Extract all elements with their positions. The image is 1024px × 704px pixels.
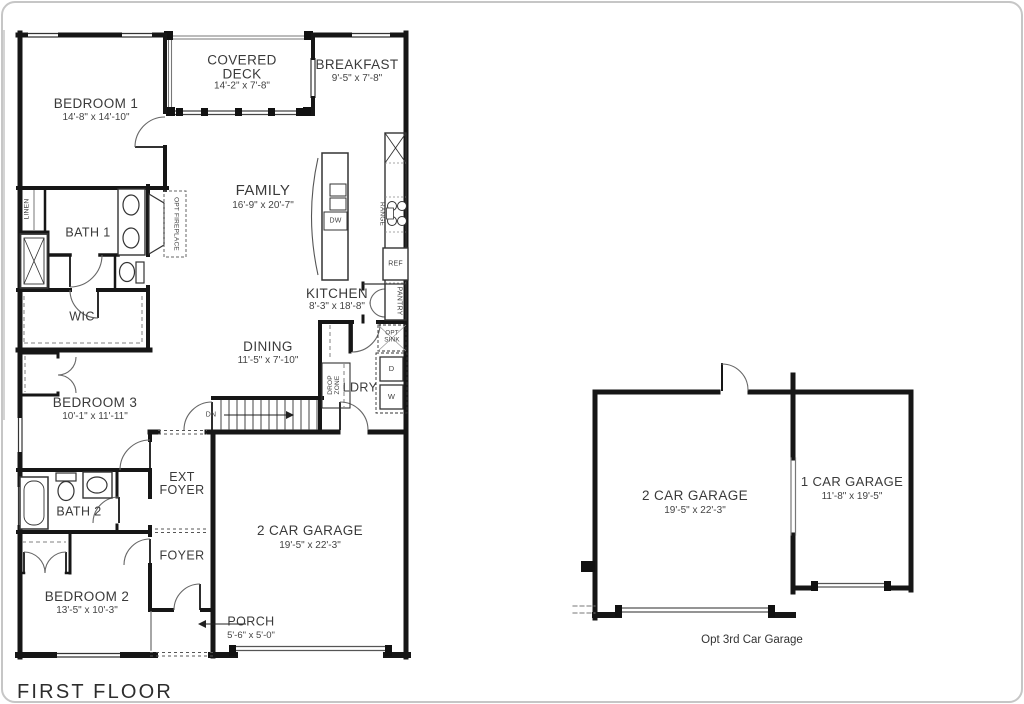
garage-door-main — [229, 645, 392, 656]
washer-label: W — [388, 393, 395, 401]
windows — [16, 31, 391, 660]
room-label-dining: DINING — [243, 340, 293, 354]
room-label-bedroom2: BEDROOM 2 — [45, 590, 130, 604]
room-dims-garage-main: 19'-5" x 22'-3" — [279, 541, 341, 552]
floor-plan-page: BEDROOM 1 14'-8" x 14'-10" COVERED DECK … — [0, 0, 1024, 704]
room-dims-porch: 5'-6" x 5'-0" — [227, 631, 275, 641]
room-label-bedroom1: BEDROOM 1 — [54, 97, 139, 111]
fireplace — [149, 191, 186, 257]
room-dims-breakfast: 9'-5" x 7'-8" — [332, 74, 382, 85]
drop-zone-label: DROP ZONE — [328, 375, 342, 395]
room-dims-dining: 11'-5" x 7'-10" — [238, 356, 299, 367]
room-label-garage-main: 2 CAR GARAGE — [257, 524, 363, 538]
room-label-opt-1car-garage: 1 CAR GARAGE — [801, 475, 903, 489]
room-dims-bedroom1: 14'-8" x 14'-10" — [62, 113, 129, 124]
room-label-covered-deck: COVERED DECK 14'-2" x 7'-8" — [207, 54, 277, 93]
room-label-bath1: BATH 1 — [65, 226, 110, 239]
dishwasher-label: DW — [329, 217, 341, 224]
room-label-ldry: LDRY — [343, 381, 378, 394]
room-label-bedroom3: BEDROOM 3 — [53, 396, 138, 410]
opt-sink-label: OPT SINK — [384, 330, 400, 343]
room-dims-opt-2car-garage: 19'-5" x 22'-3" — [664, 506, 726, 517]
stairs-down-label: DN — [206, 411, 217, 418]
plan-title: FIRST FLOOR — [17, 682, 173, 703]
room-dims-family: 16'-9" x 20'-7" — [232, 201, 294, 212]
range-label: RANGE — [378, 202, 385, 226]
ext-foyer-line2: FOYER — [159, 484, 204, 497]
covered-deck-line1: COVERED — [207, 54, 277, 68]
stairs — [221, 400, 317, 430]
refrigerator-label: REF — [388, 260, 403, 267]
drop-zone-line2: ZONE — [335, 376, 342, 395]
room-label-wic: WIC — [69, 310, 95, 323]
room-label-family: FAMILY — [236, 183, 291, 199]
dryer-label: D — [389, 365, 395, 373]
bath2-fixtures — [20, 472, 112, 529]
room-dims-opt-1car-garage: 11'-8" x 19'-5" — [822, 492, 883, 503]
room-label-foyer: FOYER — [159, 549, 204, 562]
opt-fireplace-label: OPT FIREPLACE — [172, 197, 179, 251]
opt-sink-line2: SINK — [384, 337, 400, 344]
opt-garage-caption: Opt 3rd Car Garage — [701, 634, 803, 646]
room-dims-bedroom3: 10'-1" x 11'-11" — [62, 412, 128, 423]
covered-deck-line2: DECK — [222, 68, 261, 82]
room-label-breakfast: BREAKFAST — [315, 58, 398, 72]
room-label-opt-2car-garage: 2 CAR GARAGE — [642, 489, 748, 503]
room-dims-kitchen: 8'-3" x 18'-8" — [309, 302, 365, 313]
room-dims-bedroom2: 13'-5" x 10'-3" — [56, 606, 118, 617]
pantry-label: PANTRY — [395, 287, 402, 316]
linen-label: LINEN — [23, 198, 30, 219]
room-label-bath2: BATH 2 — [56, 505, 101, 518]
covered-deck-dims: 14'-2" x 7'-8" — [214, 82, 270, 93]
room-label-kitchen: KITCHEN — [306, 287, 368, 301]
floor-plan-drawing — [0, 0, 1024, 704]
room-label-ext-foyer: EXT FOYER — [159, 471, 204, 497]
room-label-porch: PORCH — [227, 615, 274, 628]
interior-walls — [18, 35, 406, 656]
